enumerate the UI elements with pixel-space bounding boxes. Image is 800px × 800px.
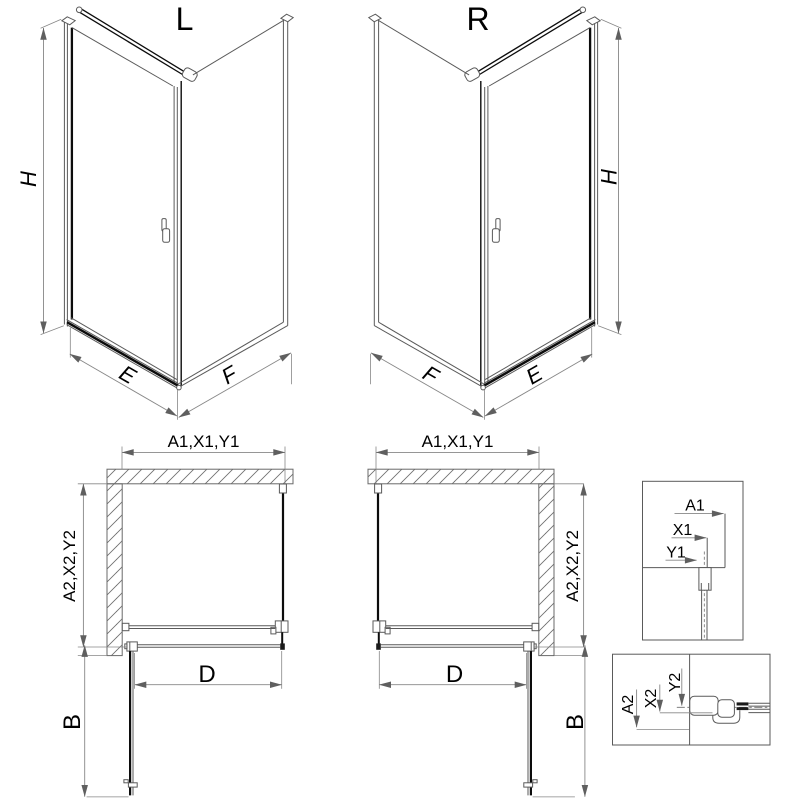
detail-label-a2: A2 (620, 695, 637, 715)
dim-label-side-width-left: F (217, 360, 242, 389)
dim-label-door-swing-right: B (562, 714, 589, 730)
dim-label-door-swing-left: B (59, 714, 86, 730)
detail-label-a1: A1 (685, 498, 705, 515)
detail-label-x1: X1 (673, 522, 693, 539)
plan-view-right: A1,X1,Y1 A2,X2,Y2 D B (368, 432, 589, 797)
plan-wall-side-left (107, 484, 122, 656)
detail-box-width-profile: A1 X1 Y1 (643, 481, 744, 640)
shower-enclosure-dimension-diagram: L H E F R H F E A1,X1,Y1 A2,X2,Y2 D B (0, 0, 800, 800)
detail-label-y1: Y1 (666, 545, 686, 562)
dim-label-side-width-right: F (419, 360, 444, 389)
dim-label-plan-depth-right: A2,X2,Y2 (563, 530, 582, 602)
detail-box-depth-profile: A2 X2 Y2 (613, 654, 771, 745)
plan-wall-top-left (107, 469, 293, 484)
perspective-view-left: L H E F (16, 1, 293, 420)
perspective-view-right: R H F E (369, 1, 622, 420)
dim-label-door-width-left: E (115, 360, 140, 389)
plan-view-left: A1,X1,Y1 A2,X2,Y2 D B (59, 432, 293, 797)
dim-label-door-width-right: E (522, 360, 547, 389)
dim-label-plan-width-right: A1,X1,Y1 (422, 432, 494, 451)
plan-wall-top-right (368, 469, 554, 484)
dim-label-opening-left: D (198, 661, 215, 688)
variant-label-left: L (176, 1, 194, 37)
dim-label-plan-depth-left: A2,X2,Y2 (60, 530, 79, 602)
variant-label-right: R (466, 1, 489, 37)
detail-wall-bracket (690, 696, 718, 715)
dim-label-height-left: H (16, 171, 41, 187)
dim-label-opening-right: D (446, 661, 463, 688)
detail-wall-profile (699, 568, 711, 591)
detail-label-x2: X2 (643, 689, 660, 709)
detail-seal (737, 702, 749, 705)
detail-label-y2: Y2 (667, 673, 684, 693)
dim-label-height-right: H (597, 169, 622, 185)
detail-glass-clamp (718, 700, 735, 717)
technical-drawing-page: L H E F R H F E A1,X1,Y1 A2,X2,Y2 D B (0, 0, 800, 800)
plan-wall-side-right (539, 484, 554, 656)
dim-label-plan-width-left: A1,X1,Y1 (168, 432, 240, 451)
